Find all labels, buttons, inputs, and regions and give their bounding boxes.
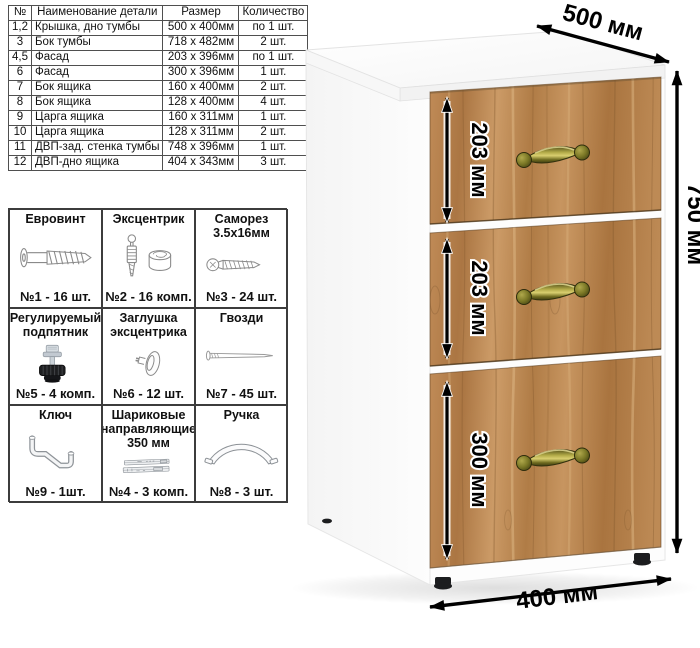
- dim-label-drawer1: 203 мм: [467, 122, 492, 197]
- cabinet-illustration: 500 мм 750 мм 400 мм 203 мм 203 мм 300 м…: [0, 0, 700, 648]
- assembly-sheet: №Наименование деталиРазмерКоличество1,2К…: [0, 0, 700, 648]
- dim-label-drawer2: 203 мм: [467, 260, 492, 335]
- dim-label-drawer3: 300 мм: [467, 432, 492, 507]
- cabinet-side-panel: [306, 60, 430, 585]
- dim-label-height: 750 мм: [682, 183, 700, 265]
